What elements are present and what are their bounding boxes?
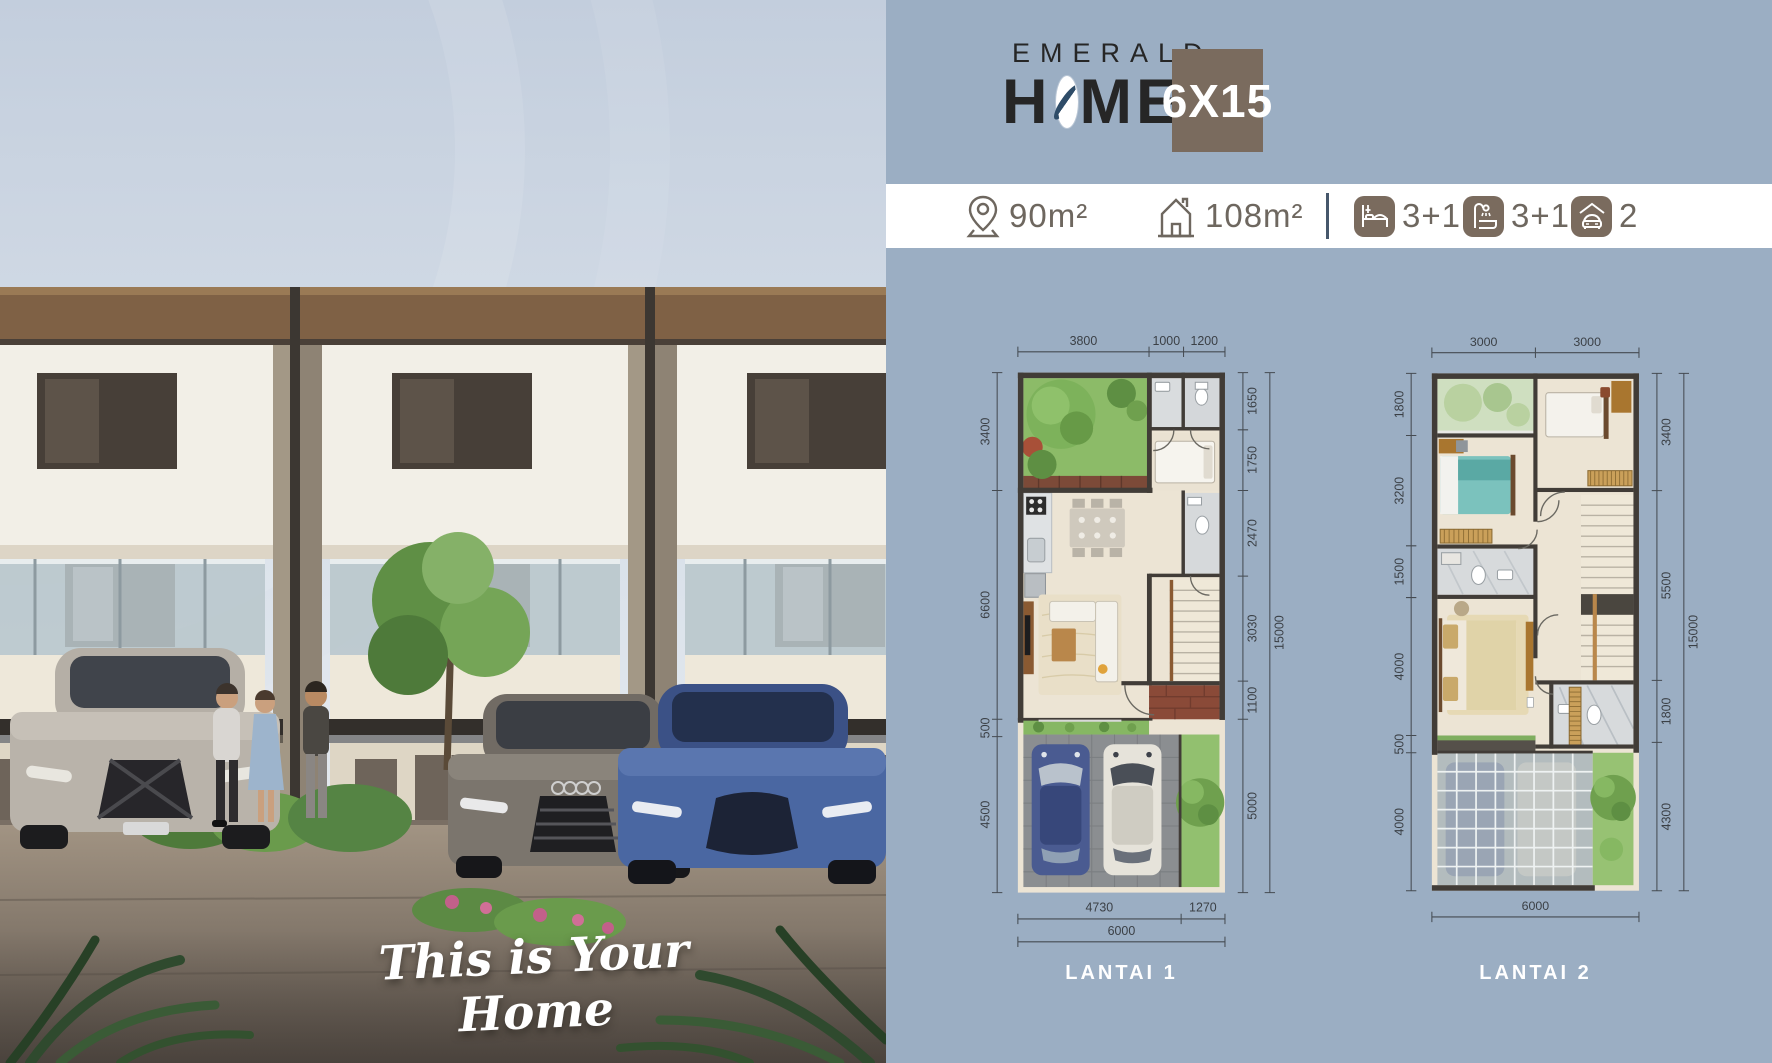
car-icon (1571, 196, 1612, 237)
svg-text:15000: 15000 (1687, 615, 1701, 650)
svg-text:1100: 1100 (1246, 687, 1260, 714)
exterior-photo: This is Your Home (0, 0, 886, 1063)
svg-text:3000: 3000 (1573, 335, 1601, 349)
svg-text:1200: 1200 (1190, 334, 1218, 348)
floor-plan-2: 3000 3000 1800 3200 1500 4000 500 4000 3… (1387, 332, 1708, 944)
svg-text:1000: 1000 (1152, 334, 1180, 348)
plan1-car-white (1103, 744, 1161, 875)
svg-text:500: 500 (1393, 734, 1407, 755)
svg-text:3200: 3200 (1393, 477, 1407, 505)
svg-text:4000: 4000 (1393, 653, 1407, 681)
bedrooms-value: 3+1 (1402, 197, 1461, 235)
plan2-skylight-void (1437, 753, 1592, 885)
svg-text:4500: 4500 (979, 801, 993, 829)
logo-o-swirl-icon (1056, 76, 1076, 128)
carport-value: 2 (1619, 197, 1638, 235)
tagline-script: This is Your Home (298, 920, 772, 1050)
car-blue (618, 684, 886, 884)
home-h: H (1002, 69, 1052, 135)
bath-icon (1463, 196, 1504, 237)
floor-plan-1: 3800 1000 1200 3400 6600 500 4500 1650 1… (973, 331, 1294, 960)
plan1-car-blue (1032, 744, 1090, 875)
svg-text:6000: 6000 (1522, 899, 1550, 913)
info-panel: EMERALD HME 6X15 90m² (886, 0, 1772, 1063)
brand-logo: EMERALD HME (1002, 38, 1182, 135)
spec-divider (1326, 193, 1329, 239)
svg-text:15000: 15000 (1273, 615, 1287, 650)
svg-text:6000: 6000 (1108, 924, 1136, 938)
plan1-side-garden (1176, 735, 1224, 888)
svg-text:4000: 4000 (1393, 808, 1407, 836)
plan2-bathroom-2 (1553, 684, 1633, 748)
plan1-maid-room (1149, 433, 1219, 490)
svg-text:1750: 1750 (1246, 446, 1260, 474)
svg-text:1800: 1800 (1393, 391, 1407, 419)
bathrooms-value: 3+1 (1511, 197, 1570, 235)
exterior-scene (0, 0, 886, 1063)
size-badge: 6X15 (1172, 49, 1263, 152)
svg-text:1650: 1650 (1246, 387, 1260, 415)
plan2-bathroom-1 (1437, 549, 1535, 595)
svg-text:3000: 3000 (1470, 335, 1498, 349)
plan1-dining (1070, 499, 1125, 557)
svg-text:3030: 3030 (1246, 614, 1260, 642)
plan2-bedroom-2 (1437, 437, 1535, 545)
plan2-stairs (1581, 495, 1633, 681)
house-icon (1154, 194, 1198, 238)
plan1-caption: LANTAI 1 (1018, 962, 1225, 985)
spec-bar: 90m² 108m² (886, 184, 1772, 248)
svg-text:2470: 2470 (1246, 519, 1260, 547)
svg-text:5500: 5500 (1660, 572, 1674, 600)
plan2-caption: LANTAI 2 (1432, 962, 1639, 985)
plan2-balcony-garden (1437, 379, 1535, 434)
brand-name-top: EMERALD (1002, 38, 1182, 69)
brand-name-bottom: HME (1002, 69, 1182, 135)
brochure-page: This is Your Home EMERALD HME 6X15 90m² (0, 0, 1772, 1063)
svg-text:4300: 4300 (1660, 803, 1674, 831)
spec-bathrooms: 3+1 (1463, 184, 1570, 248)
plan2-bedroom-3 (1535, 379, 1633, 488)
svg-text:6600: 6600 (979, 591, 993, 619)
svg-text:1500: 1500 (1393, 558, 1407, 586)
svg-text:3400: 3400 (979, 418, 993, 446)
spec-land-area: 90m² (964, 184, 1088, 248)
spec-building-area: 108m² (1154, 184, 1304, 248)
svg-text:1270: 1270 (1189, 900, 1217, 914)
people (212, 681, 329, 827)
svg-text:4730: 4730 (1086, 900, 1114, 914)
plan1-garden (1022, 378, 1149, 490)
svg-text:5000: 5000 (1246, 792, 1260, 820)
map-pin-icon (964, 194, 1002, 238)
land-area-value: 90m² (1009, 197, 1088, 235)
building-area-value: 108m² (1205, 197, 1304, 235)
svg-text:3400: 3400 (1660, 418, 1674, 446)
plan2-master-bedroom (1437, 599, 1535, 736)
svg-text:3800: 3800 (1070, 334, 1098, 348)
svg-text:1800: 1800 (1660, 697, 1674, 725)
svg-text:500: 500 (979, 717, 993, 738)
bed-icon (1354, 196, 1395, 237)
plan1-entry-porch (1149, 685, 1219, 719)
plan1-stairs (1170, 580, 1220, 681)
spec-carport: 2 (1571, 184, 1638, 248)
spec-bedrooms: 3+1 (1354, 184, 1461, 248)
plan2-side-garden (1590, 753, 1636, 885)
